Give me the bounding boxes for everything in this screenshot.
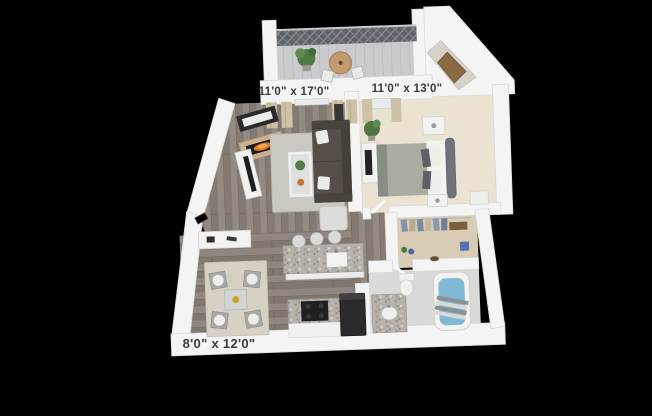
bedroom-dimensions-label: 11'0" x 13'0" <box>372 83 443 95</box>
bedroom-curtain-left <box>362 99 373 123</box>
balcony-door-threshold <box>295 98 329 105</box>
bedroom-window <box>372 98 391 109</box>
closet-blue-bin <box>460 242 469 251</box>
bedroom-bottom-wall-a <box>363 207 371 219</box>
closet-bath-wall-b <box>412 257 478 271</box>
dresser <box>361 143 378 184</box>
closet-bath-wall-a <box>368 260 392 273</box>
cooktop <box>301 300 329 321</box>
bathroom-sink <box>381 307 397 321</box>
sofa-pillow-top <box>315 130 329 145</box>
dining-table <box>224 289 247 310</box>
bed-accent-pillow-b <box>422 171 431 190</box>
sofa-pillow-bottom <box>317 176 330 190</box>
bedroom-curtain-right <box>391 98 402 122</box>
bedroom-tv <box>365 150 373 175</box>
bed-foot-throw <box>376 144 388 196</box>
bedroom-bench <box>470 191 488 205</box>
living-room-dimensions-label: 11'0" x 17'0" <box>259 86 330 98</box>
nightstand-top <box>423 116 446 135</box>
patio-chair-right <box>351 66 364 79</box>
headboard <box>445 138 456 198</box>
dining-dimensions-label: 8'0" x 12'0" <box>183 336 256 351</box>
kitchen-sink <box>326 252 348 268</box>
closet-shelf-box <box>449 222 467 231</box>
nightstand-bottom <box>427 194 447 207</box>
entry-console <box>198 230 251 249</box>
coffee-table <box>288 151 314 198</box>
vanity <box>372 294 407 333</box>
kitchen-peninsula <box>283 243 364 280</box>
refrigerator <box>340 293 366 336</box>
ottoman <box>320 206 348 231</box>
sofa <box>312 120 353 203</box>
patio-chair-left <box>321 69 334 82</box>
bathtub <box>432 272 471 331</box>
bed <box>376 138 456 201</box>
floorplan-body <box>160 4 524 356</box>
speaker <box>334 104 344 121</box>
floorplan-render: 11'0" x 17'0" 11'0" x 13'0" 8'0" x 12'0" <box>0 0 652 416</box>
floorplan-canvas: 11'0" x 17'0" 11'0" x 13'0" 8'0" x 12'0" <box>0 0 652 416</box>
